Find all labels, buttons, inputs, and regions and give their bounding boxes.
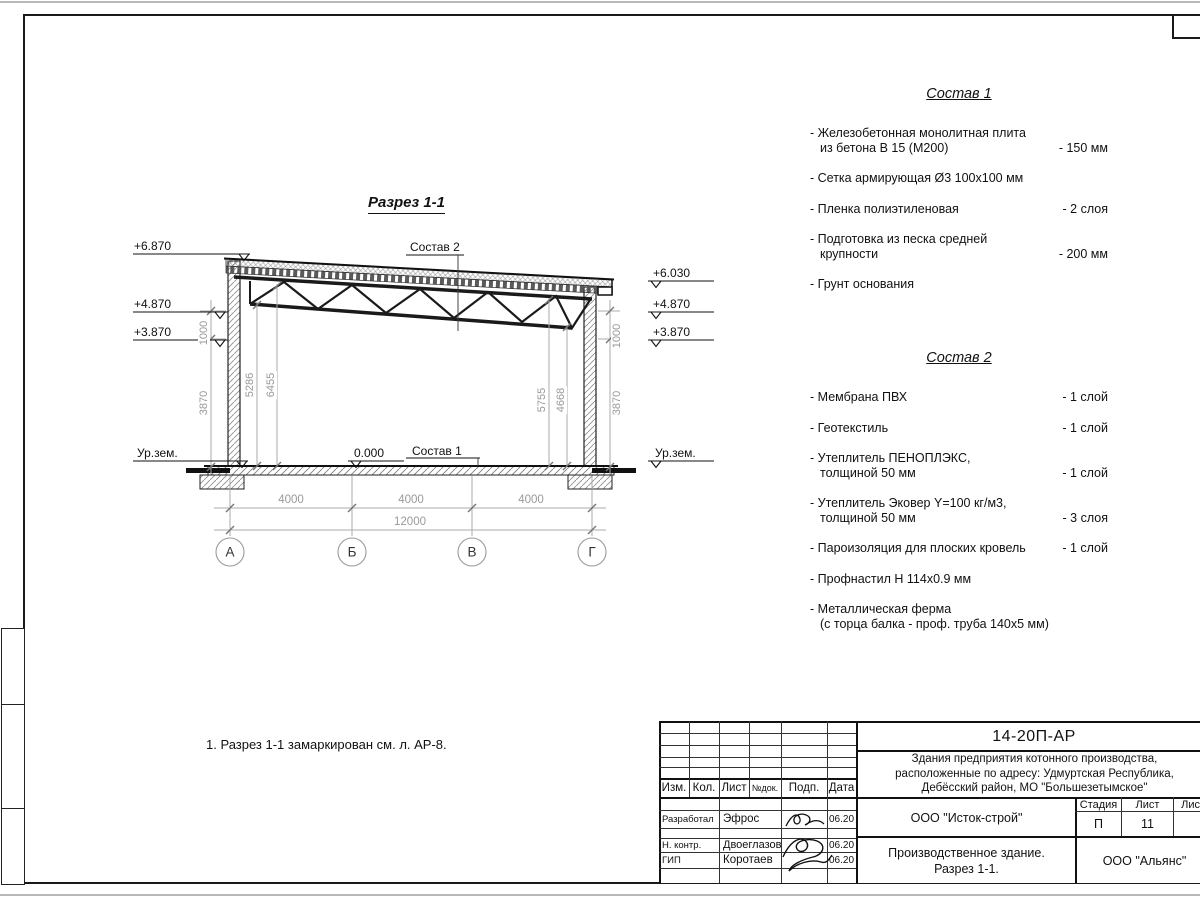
list-item: - Пленка полиэтиленовая - 2 слоя	[810, 202, 1108, 217]
tb-date-1: 06.20	[829, 810, 856, 828]
elevation-marks	[133, 254, 714, 468]
tb-project: Здания предприятия котонного производств…	[859, 752, 1200, 796]
dim-4668: 4668	[555, 386, 567, 414]
ground-level-right: Ур.зем.	[655, 446, 696, 460]
tb-name-1: Эфрос	[723, 810, 780, 828]
dim-5755: 5755	[536, 386, 548, 414]
tb-role-1: Разработал	[662, 810, 720, 828]
tb-org: ООО "Альянс"	[1077, 838, 1200, 883]
left-wall	[228, 261, 240, 466]
tb-sheet-label: Лист	[1122, 798, 1173, 811]
dim-6455: 6455	[265, 371, 277, 399]
tb-sheet-value: 11	[1122, 812, 1173, 836]
tb-object: Производственное здание. Разрез 1-1.	[858, 838, 1075, 883]
dim-12000: 12000	[394, 516, 426, 528]
list-item: - Геотекстиль - 1 слой	[810, 421, 1108, 436]
callout-sostav-1: Состав 1	[412, 444, 462, 458]
signature-2	[777, 831, 835, 875]
tb-sheets-label: Листов	[1174, 798, 1200, 811]
elevation-left-2: +4.870	[134, 297, 171, 311]
elevation-left-1: +6.870	[134, 239, 171, 253]
elevation-right-1: +6.030	[653, 266, 690, 280]
axis-b: Б	[348, 545, 357, 560]
sostav-2-list: Состав 2 - Мембрана ПВХ - 1 слой - Геоте…	[810, 350, 1108, 647]
zero-level: 0.000	[354, 446, 384, 460]
signature-1	[783, 809, 827, 831]
callout-sostav-2: Состав 2	[410, 240, 460, 254]
tb-role-2: Н. контр.	[662, 838, 720, 852]
elevation-right-3: +3.870	[653, 325, 690, 339]
tb-name-3: Коротаев	[723, 852, 783, 868]
title-block: Изм. Кол. Лист №док. Подп. Дата Разработ…	[659, 721, 1200, 883]
tb-doc-number: 14-20П-АР	[858, 724, 1200, 749]
dim-4000-1: 4000	[278, 494, 304, 506]
dim-3870-left: 3870	[198, 389, 210, 417]
tb-stage-value: П	[1076, 812, 1121, 836]
tb-col-ndok: №док.	[749, 779, 781, 797]
list-item: - Мембрана ПВХ - 1 слой	[810, 390, 1108, 405]
drawing-sheet: { "drawing": { "title": "Разрез 1-1", "l…	[0, 0, 1200, 900]
sostav-1-title: Состав 1	[810, 86, 1108, 102]
elevation-left-3: +3.870	[134, 325, 171, 339]
ground-level-left: Ур.зем.	[137, 446, 178, 460]
section-title: Разрез 1-1	[368, 194, 445, 214]
axis-v: В	[467, 545, 476, 560]
tb-role-3: ГИП	[662, 852, 720, 868]
elevation-right-2: +4.870	[653, 297, 690, 311]
sheet-note: 1. Разрез 1-1 замаркирован см. л. АР-8.	[206, 737, 447, 752]
dim-1000-left: 1000	[198, 319, 210, 347]
tb-company: ООО "Исток-строй"	[858, 799, 1075, 836]
tb-stage-label: Стадия	[1076, 798, 1121, 811]
dim-5286: 5286	[244, 371, 256, 399]
right-wall	[584, 287, 596, 466]
axis-a: А	[225, 545, 234, 560]
dim-4000-2: 4000	[398, 494, 424, 506]
sostav-2-title: Состав 2	[810, 350, 1108, 366]
tb-col-izm: Изм.	[659, 779, 689, 797]
tb-name-2: Двоеглазов	[723, 838, 783, 852]
list-item: - Утеплитель ПЕНОПЛЭКС, толщиной 50 мм -…	[810, 451, 1108, 480]
tb-col-data: Дата	[827, 779, 856, 797]
list-item: - Металлическая ферма (с торца балка - п…	[810, 602, 1108, 631]
sostav-1-list: Состав 1 - Железобетонная монолитная пли…	[810, 86, 1108, 308]
list-item: - Железобетонная монолитная плита из бет…	[810, 126, 1108, 155]
list-item: - Профнастил Н 114х0.9 мм	[810, 572, 1108, 587]
tb-col-podp: Подп.	[781, 779, 827, 797]
dim-3870-right: 3870	[611, 389, 623, 417]
tb-col-kol: Кол.	[689, 779, 719, 797]
dim-4000-3: 4000	[518, 494, 544, 506]
list-item: - Утеплитель Эковер Y=100 кг/м3, толщино…	[810, 496, 1108, 525]
list-item: - Подготовка из песка средней крупности …	[810, 232, 1108, 261]
axis-bubbles	[216, 538, 606, 566]
axis-g: Г	[588, 545, 595, 560]
dim-1000-right: 1000	[611, 322, 623, 350]
list-item: - Грунт основания	[810, 277, 1108, 292]
list-item: - Пароизоляция для плоских кровель - 1 с…	[810, 541, 1108, 556]
list-item: - Сетка армирующая Ø3 100х100 мм	[810, 171, 1108, 186]
tb-col-list: Лист	[719, 779, 749, 797]
